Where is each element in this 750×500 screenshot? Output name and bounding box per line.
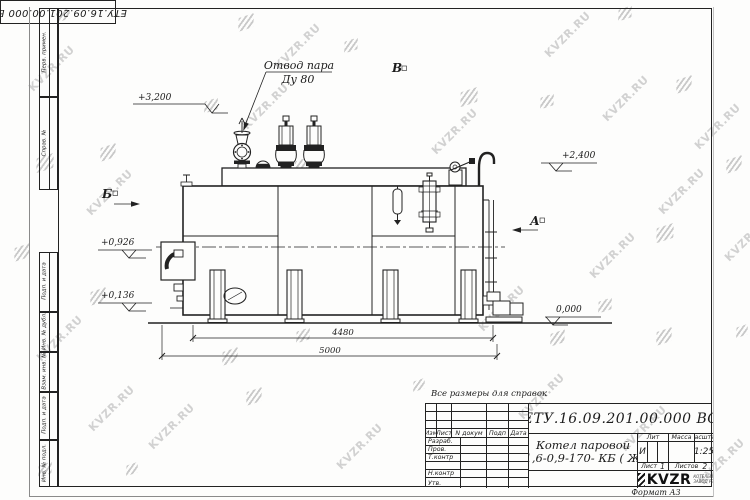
tb-scale-value: 1:25 [695, 442, 713, 463]
tb-cell [461, 462, 487, 470]
tb-cell [487, 454, 509, 462]
tb-mass-label: Масса [669, 434, 695, 442]
tb-row-nkontr: Н.контр [426, 470, 461, 478]
tb-cell [461, 446, 487, 454]
tb-cell [509, 470, 529, 478]
tb-cell [529, 471, 638, 488]
tb-cell [487, 438, 509, 446]
tb-company: KVZR КОТЕЛЬНЫЙ ЗАВОД РЭП [638, 471, 713, 488]
tb-cell [509, 462, 529, 470]
tb-cell [487, 446, 509, 454]
kvzr-logo-icon [638, 473, 645, 486]
tb-lit-value: И [638, 442, 648, 463]
tb-product-line2: Е -1,6-0,9-170- КБ ( ЖК ) [529, 452, 638, 465]
kvzr-logo-word: KVZR [647, 472, 692, 488]
tb-row-prov: Пров. [426, 446, 461, 454]
tb-cell [461, 478, 487, 488]
page-trim-right [713, 7, 714, 497]
tb-cell [437, 404, 452, 412]
tb-cell [437, 412, 452, 420]
tb-sheets: Листов2 [669, 463, 713, 471]
tb-cell [487, 412, 509, 420]
tb-cell [452, 404, 487, 412]
drawing-sheet: KVZR.RUKVZR.RUKVZR.RUKVZR.RUKVZR.RUKVZR.… [0, 0, 750, 500]
tb-cell [452, 421, 487, 429]
frame-column-sprav-no: Справ. № [39, 97, 58, 190]
tb-cell [452, 412, 487, 420]
tb-cell [509, 454, 529, 462]
tb-cell [648, 442, 658, 463]
tb-mass-value [669, 442, 695, 463]
tb-cell [487, 404, 509, 412]
frame-column-podp-data-2: Подп. и дата [39, 392, 58, 440]
tb-cell [487, 421, 509, 429]
tb-cell [509, 421, 529, 429]
tb-cell [509, 412, 529, 420]
tb-cell [487, 478, 509, 488]
tb-col-podp: Подп [487, 429, 509, 438]
tb-cell [509, 446, 529, 454]
tb-product-name: Котел паровой Е -1,6-0,9-170- КБ ( ЖК ) [529, 434, 638, 471]
tb-cell [461, 454, 487, 462]
tb-scale-label: Масштаб [695, 434, 713, 442]
tb-cell [658, 442, 669, 463]
tb-sheet: Лист1 [638, 463, 669, 471]
tb-cell [461, 438, 487, 446]
tb-cell [509, 438, 529, 446]
frame-column-perv-primen: Перв. примен. [39, 8, 58, 97]
reference-note: Все размеры для справок [431, 389, 547, 399]
tb-col-izm: Изм [426, 429, 437, 438]
tb-row-utv: Утв. [426, 478, 461, 488]
tb-cell [426, 421, 437, 429]
tb-cell [461, 470, 487, 478]
tb-cell [487, 462, 509, 470]
tb-cell [487, 470, 509, 478]
frame-column-inv-podl: Инв. № подл. [39, 440, 58, 487]
format-label: Формат А3 [600, 488, 712, 497]
tb-row-razrab: Разраб. [426, 438, 461, 446]
tb-row-tkontr: Т.контр [426, 454, 461, 462]
tb-cell [426, 412, 437, 420]
tb-col-list: Лист [437, 429, 452, 438]
tb-col-data: Дата [509, 429, 529, 438]
page-trim-left [29, 7, 30, 497]
kvzr-tagline: КОТЕЛЬНЫЙ ЗАВОД РЭП [693, 475, 713, 484]
tb-cell [437, 421, 452, 429]
tb-cell [509, 478, 529, 488]
tb-cell [426, 462, 461, 470]
tb-lit-label: Лит [638, 434, 669, 442]
tb-cell [509, 404, 529, 412]
tb-cell [426, 404, 437, 412]
tb-doc-number: ЕТУ.16.09.201.00.000 ВО [529, 404, 713, 434]
tb-col-ndoc: N докум [452, 429, 487, 438]
title-block: Изм Лист N докум Подп Дата Разраб. Пров.… [425, 403, 712, 487]
